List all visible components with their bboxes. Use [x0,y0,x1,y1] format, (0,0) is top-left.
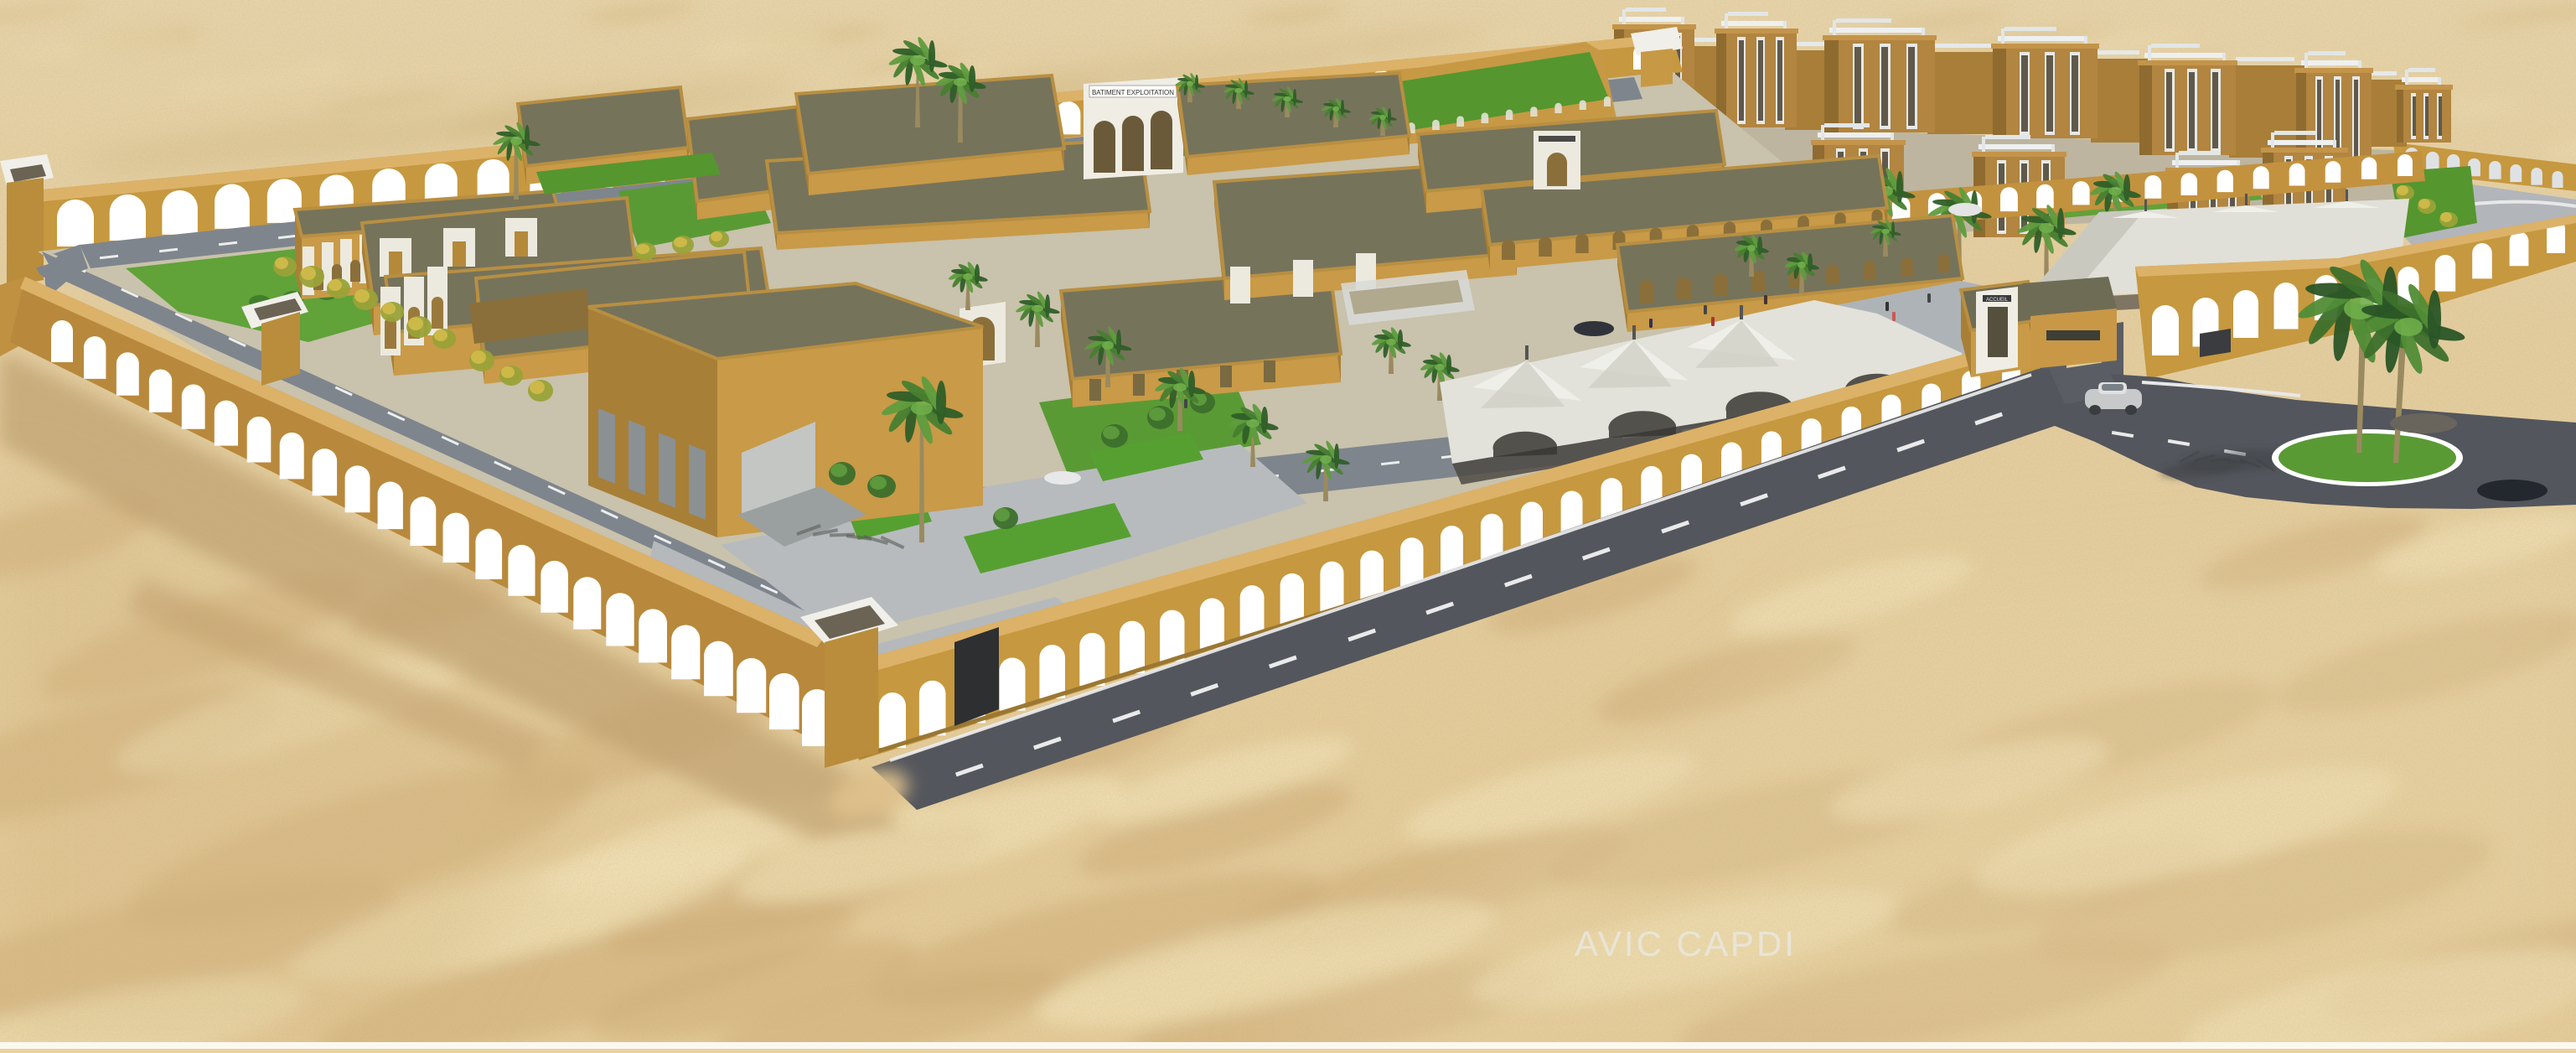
svg-text:ACCUEIL: ACCUEIL [1986,298,2009,303]
svg-text:BATIMENT EXPLOITATION: BATIMENT EXPLOITATION [1092,89,1174,96]
svg-text:AVIC CAPDI: AVIC CAPDI [1575,924,1797,963]
